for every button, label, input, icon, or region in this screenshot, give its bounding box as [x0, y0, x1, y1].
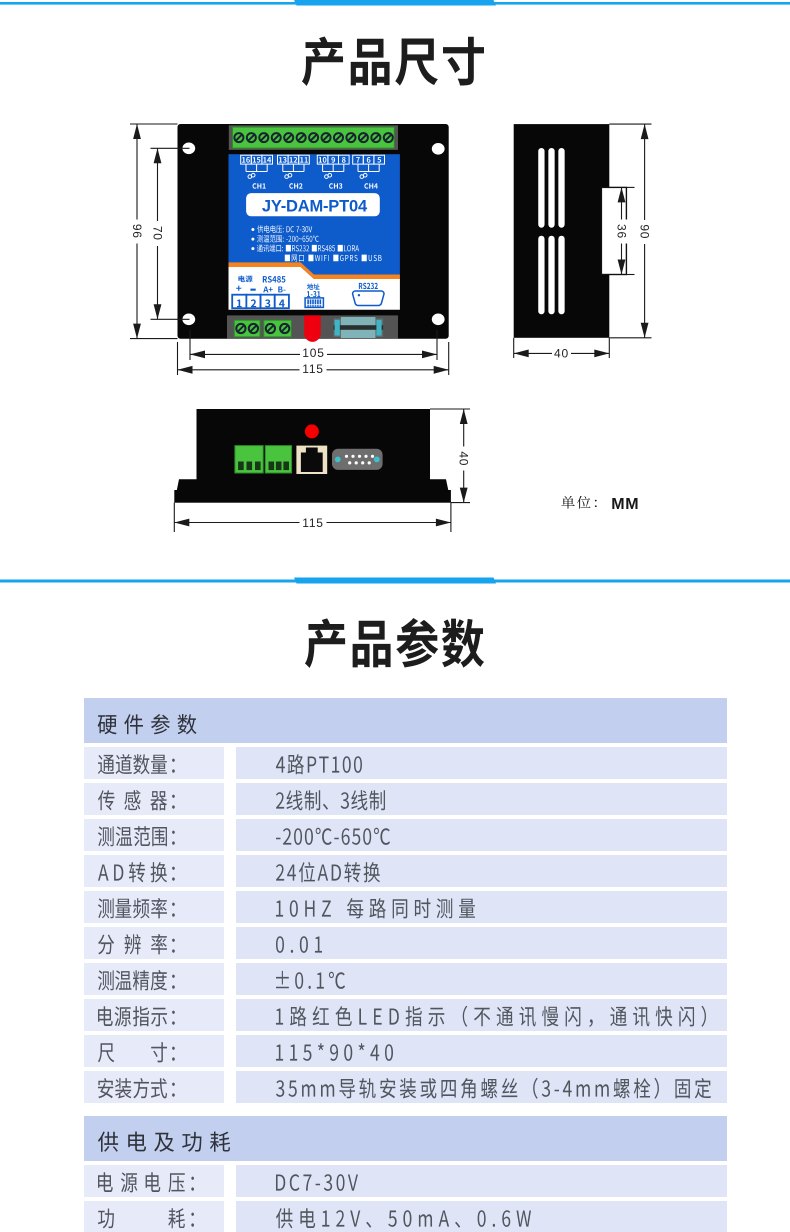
- svg-text:105: 105: [302, 346, 324, 360]
- svg-text:MM: MM: [611, 496, 639, 513]
- svg-text:40: 40: [554, 346, 569, 360]
- svg-text:40: 40: [457, 451, 471, 466]
- svg-text:96: 96: [130, 224, 144, 239]
- svg-text:90: 90: [637, 224, 651, 239]
- svg-text:70: 70: [150, 226, 164, 241]
- svg-text:115: 115: [302, 516, 324, 530]
- svg-text:JY-DAM-PT04: JY-DAM-PT04: [262, 198, 368, 216]
- svg-text:36: 36: [614, 224, 628, 239]
- svg-text:115: 115: [302, 362, 324, 376]
